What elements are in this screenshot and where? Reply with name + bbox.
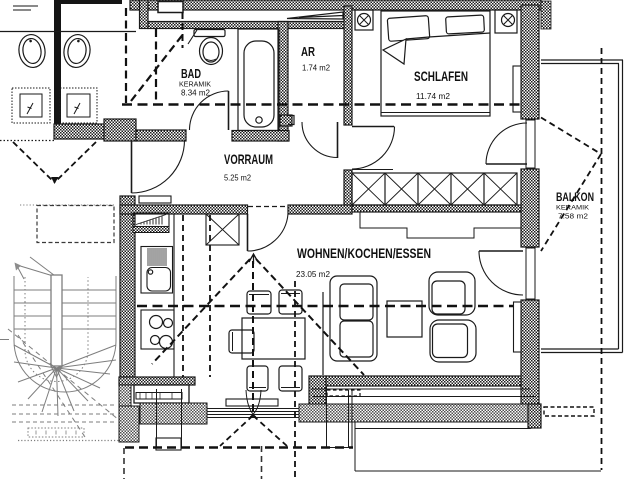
svg-text:BALKON: BALKON: [556, 192, 594, 204]
svg-text:1.74 m2: 1.74 m2: [302, 64, 331, 73]
svg-text:7.58 m2: 7.58 m2: [558, 212, 588, 221]
svg-text:WOHNEN/KOCHEN/ESSEN: WOHNEN/KOCHEN/ESSEN: [297, 246, 431, 261]
svg-text:KERAMIK: KERAMIK: [556, 205, 590, 212]
svg-text:VORRAUM: VORRAUM: [224, 151, 273, 167]
svg-text:8.34 m2: 8.34 m2: [181, 89, 211, 98]
svg-text:23.05 m2: 23.05 m2: [296, 269, 330, 279]
svg-text:11.74 m2: 11.74 m2: [416, 91, 450, 101]
svg-text:AR: AR: [301, 44, 315, 59]
svg-text:KERAMIK: KERAMIK: [179, 80, 211, 89]
svg-text:SCHLAFEN: SCHLAFEN: [414, 68, 468, 84]
svg-text:5.25 m2: 5.25 m2: [224, 174, 252, 183]
